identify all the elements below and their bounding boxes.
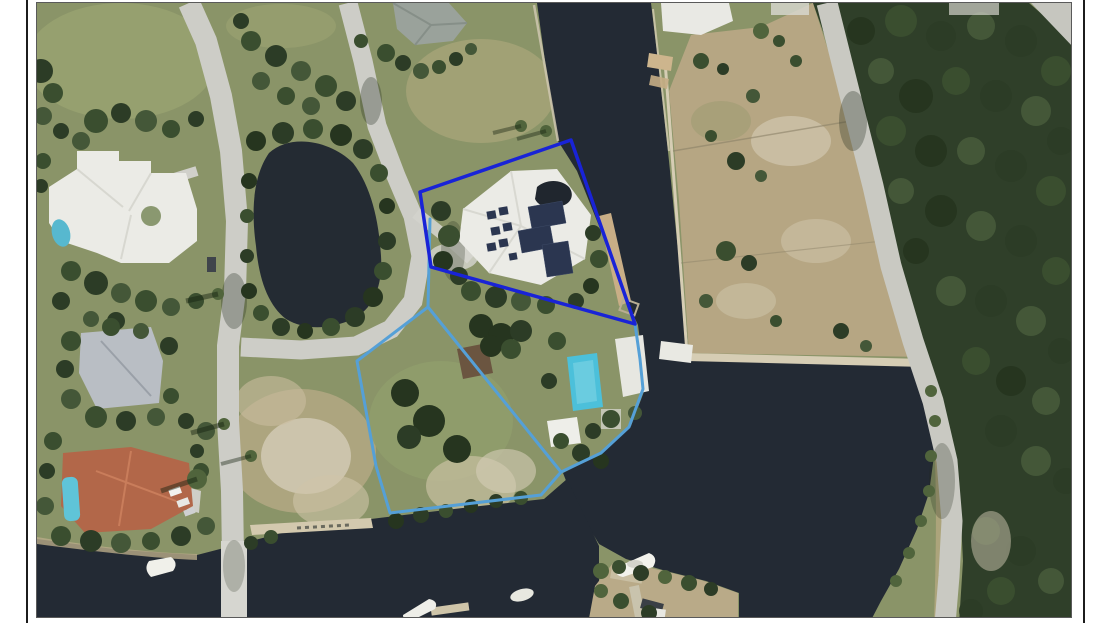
- tree-icon: [178, 413, 194, 429]
- tree-icon: [1036, 176, 1066, 206]
- tree-icon: [903, 547, 915, 559]
- tree-icon: [162, 120, 180, 138]
- tree-icon: [890, 575, 902, 587]
- tree-icon: [1041, 56, 1071, 86]
- tree-icon: [847, 17, 875, 45]
- tree-icon: [438, 225, 460, 247]
- tree-icon: [388, 513, 404, 529]
- tree-icon: [85, 406, 107, 428]
- tree-icon: [253, 305, 269, 321]
- tree-icon: [111, 283, 131, 303]
- tree-icon: [985, 415, 1017, 447]
- tree-icon: [465, 43, 477, 55]
- tree-icon: [443, 435, 471, 463]
- tree-icon: [926, 21, 956, 51]
- tree-icon: [61, 261, 81, 281]
- tree-icon: [541, 373, 557, 389]
- tree-icon: [44, 432, 62, 450]
- frame-border-right: [1083, 0, 1085, 623]
- tree-icon: [80, 530, 102, 552]
- tree-icon: [241, 173, 257, 189]
- tree-icon: [142, 532, 160, 550]
- tree-icon: [464, 499, 478, 513]
- tree-icon: [111, 103, 131, 123]
- tree-icon: [548, 332, 566, 350]
- tree-icon: [162, 298, 180, 316]
- tree-icon: [790, 55, 802, 67]
- tree-shadow: [839, 91, 867, 151]
- tree-icon: [967, 12, 995, 40]
- tree-icon: [485, 286, 507, 308]
- tree-icon: [585, 225, 601, 241]
- tree-icon: [681, 575, 697, 591]
- sand-patch: [236, 376, 306, 426]
- tree-icon: [52, 292, 70, 310]
- tree-icon: [593, 563, 609, 579]
- tree-icon: [374, 262, 392, 280]
- tree-icon: [929, 415, 941, 427]
- tree-icon: [330, 124, 352, 146]
- tree-icon: [336, 91, 356, 111]
- tree-icon: [693, 53, 709, 69]
- driveway: [634, 586, 641, 617]
- solar-panel: [502, 222, 512, 231]
- tree-icon: [240, 209, 254, 223]
- tree-icon: [996, 366, 1026, 396]
- tree-icon: [987, 577, 1015, 605]
- tree-shadow: [360, 77, 382, 125]
- frame-border-left: [26, 0, 28, 623]
- tree-icon: [705, 130, 717, 142]
- tree-icon: [925, 450, 937, 462]
- tree-icon: [461, 281, 481, 301]
- tree-icon: [370, 164, 388, 182]
- tree-icon: [923, 485, 935, 497]
- tree-icon: [133, 323, 149, 339]
- tree-icon: [431, 201, 451, 221]
- tree-icon: [888, 178, 914, 204]
- tree-icon: [160, 337, 178, 355]
- tree-icon: [252, 72, 270, 90]
- tree-icon: [658, 570, 672, 584]
- tree-icon: [241, 283, 257, 299]
- tree-icon: [379, 198, 395, 214]
- tree-shadow: [223, 540, 245, 592]
- tree-icon: [135, 290, 157, 312]
- tree-icon: [1005, 225, 1037, 257]
- tree-icon: [501, 339, 521, 359]
- tree-icon: [197, 517, 215, 535]
- tree-icon: [303, 119, 323, 139]
- tree-icon: [61, 331, 81, 351]
- tree-icon: [163, 388, 179, 404]
- scrub-patch: [406, 39, 556, 143]
- tree-icon: [244, 536, 258, 550]
- tree-icon: [833, 323, 849, 339]
- tree-icon: [716, 241, 736, 261]
- sand-patch: [751, 116, 831, 166]
- tree-icon: [1038, 568, 1064, 594]
- tree-icon: [322, 318, 340, 336]
- tree-icon: [903, 238, 929, 264]
- dirt-patch: [476, 449, 536, 493]
- tree-icon: [613, 593, 629, 609]
- tree-icon: [147, 408, 165, 426]
- tree-icon: [116, 411, 136, 431]
- tree-icon: [449, 52, 463, 66]
- tree-icon: [135, 110, 157, 132]
- tree-icon: [302, 97, 320, 115]
- tree-icon: [741, 255, 757, 271]
- tree-icon: [885, 5, 917, 37]
- tree-icon: [432, 60, 446, 74]
- tree-icon: [297, 323, 313, 339]
- tree-icon: [395, 55, 411, 71]
- tree-icon: [353, 139, 373, 159]
- tree-icon: [354, 34, 368, 48]
- tree-icon: [717, 63, 729, 75]
- solar-panel: [498, 238, 508, 247]
- tree-icon: [699, 294, 713, 308]
- tree-icon: [291, 61, 311, 81]
- solar-panel: [509, 252, 518, 260]
- tree-icon: [51, 526, 71, 546]
- tree-icon: [363, 287, 383, 307]
- tree-icon: [915, 135, 947, 167]
- car: [207, 257, 216, 272]
- tree-icon: [980, 80, 1012, 112]
- tree-icon: [602, 410, 620, 428]
- tree-icon: [612, 560, 626, 574]
- tree-icon: [72, 132, 90, 150]
- tree-icon: [43, 83, 63, 103]
- tree-icon: [39, 463, 55, 479]
- tree-icon: [272, 318, 290, 336]
- tree-icon: [860, 340, 872, 352]
- courtyard: [141, 206, 161, 226]
- house-w-roof: [79, 327, 163, 409]
- tree-icon: [84, 271, 108, 295]
- tree-icon: [61, 389, 81, 409]
- tree-shadow: [221, 273, 247, 329]
- tree-icon: [272, 122, 294, 144]
- tree-icon: [1016, 306, 1046, 336]
- tree-icon: [633, 565, 649, 581]
- tree-icon: [594, 584, 608, 598]
- tree-icon: [246, 131, 266, 151]
- tree-icon: [936, 276, 966, 306]
- tree-icon: [1021, 446, 1051, 476]
- tree-icon: [925, 195, 957, 227]
- tree-icon: [413, 63, 429, 79]
- tree-icon: [957, 137, 985, 165]
- tree-icon: [1042, 257, 1070, 285]
- solar-panel: [486, 242, 496, 251]
- tree-icon: [915, 515, 927, 527]
- tree-icon: [378, 232, 396, 250]
- tree-icon: [966, 211, 996, 241]
- tree-icon: [171, 526, 191, 546]
- tree-icon: [391, 379, 419, 407]
- tree-icon: [84, 109, 108, 133]
- tree-icon: [1005, 25, 1037, 57]
- building-roof: [771, 3, 809, 15]
- tree-icon: [585, 423, 601, 439]
- tree-icon: [188, 111, 204, 127]
- tree-icon: [899, 79, 933, 113]
- tree-icon: [995, 150, 1027, 182]
- tree-icon: [377, 44, 395, 62]
- tree-icon: [53, 123, 69, 139]
- solar-array: [542, 241, 573, 277]
- building-roof: [949, 3, 999, 15]
- tree-icon: [773, 35, 785, 47]
- sand-patch: [716, 283, 776, 319]
- pool-shallow: [573, 360, 597, 404]
- tree-icon: [277, 87, 295, 105]
- tree-icon: [942, 67, 970, 95]
- solar-panel: [486, 210, 496, 219]
- tree-icon: [510, 320, 532, 342]
- aerial-map-canvas: [37, 3, 1071, 617]
- tree-icon: [240, 249, 254, 263]
- scrub-patch: [691, 101, 751, 141]
- tree-icon: [583, 278, 599, 294]
- tree-icon: [241, 31, 261, 51]
- tree-icon: [190, 444, 204, 458]
- tree-icon: [315, 75, 337, 97]
- tree-icon: [755, 170, 767, 182]
- tree-icon: [1032, 387, 1060, 415]
- forest-clearing: [971, 511, 1011, 571]
- tree-icon: [102, 318, 120, 336]
- tree-icon: [962, 347, 990, 375]
- tree-icon: [233, 13, 249, 29]
- tree-icon: [925, 385, 937, 397]
- tree-icon: [56, 360, 74, 378]
- tree-icon: [746, 89, 760, 103]
- map-page: [0, 0, 1110, 623]
- tree-icon: [264, 530, 278, 544]
- tree-icon: [727, 152, 745, 170]
- tree-icon: [975, 285, 1007, 317]
- solar-panel: [498, 206, 508, 215]
- tree-icon: [770, 315, 782, 327]
- tree-icon: [345, 307, 365, 327]
- tree-icon: [111, 533, 131, 553]
- sand-patch: [781, 219, 851, 263]
- pool: [61, 476, 80, 521]
- tree-icon: [753, 23, 769, 39]
- tree-icon: [590, 250, 608, 268]
- solar-panel: [490, 226, 500, 235]
- tree-icon: [83, 311, 99, 327]
- tree-icon: [876, 116, 906, 146]
- tree-icon: [480, 335, 502, 357]
- aerial-photo: [36, 2, 1072, 618]
- tree-icon: [868, 58, 894, 84]
- tree-icon: [397, 425, 421, 449]
- tree-icon: [1021, 96, 1051, 126]
- tree-icon: [553, 433, 569, 449]
- tree-icon: [704, 582, 718, 596]
- tree-icon: [265, 45, 287, 67]
